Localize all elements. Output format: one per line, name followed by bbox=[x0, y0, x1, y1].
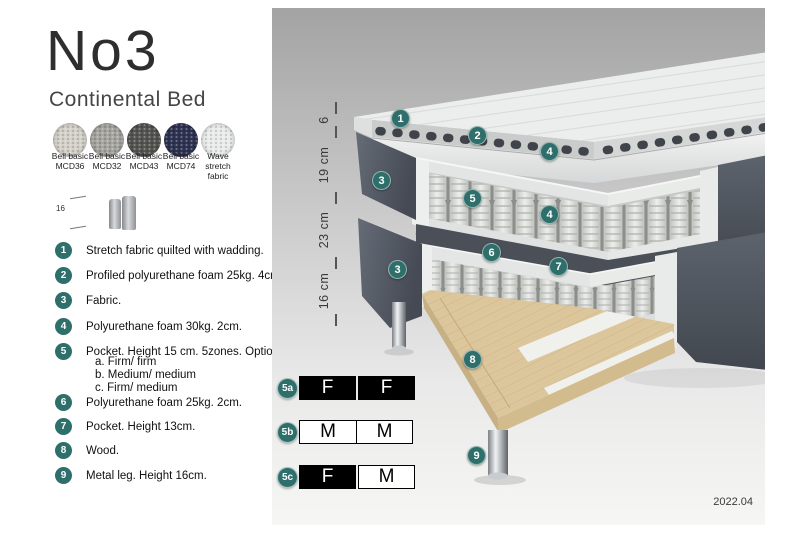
metal-leg-icon bbox=[109, 199, 121, 229]
callout-3: 3 bbox=[372, 171, 391, 190]
legend-option-b: b. Medium/ medium bbox=[95, 369, 196, 382]
legend-item-2: 2 Profiled polyurethane foam 25kg. 4cm. bbox=[55, 267, 283, 284]
legend-item-3: 3 Fabric. bbox=[55, 292, 121, 309]
legend-number-badge: 3 bbox=[55, 292, 72, 309]
legend-item-7: 7 Pocket. Height 13cm. bbox=[55, 418, 195, 435]
legend-number-badge: 5 bbox=[55, 343, 72, 360]
firmness-row-5b: 5b M M bbox=[277, 420, 413, 444]
firmness-row-5a: 5a F F bbox=[277, 376, 415, 400]
bed-cutaway-illustration bbox=[272, 8, 765, 525]
dim-label-base: 23 cm bbox=[317, 200, 331, 260]
firmness-label-badge: 5b bbox=[277, 422, 298, 443]
legend-number-badge: 8 bbox=[55, 442, 72, 459]
dim-tick bbox=[335, 257, 337, 269]
base-fabric-side-right bbox=[677, 232, 765, 370]
leg-dim-tick bbox=[70, 226, 86, 229]
page-title: No3 bbox=[46, 18, 160, 84]
firmness-cell: M bbox=[358, 465, 415, 489]
dim-tick bbox=[335, 126, 337, 138]
legend-item-4: 4 Polyurethane foam 30kg. 2cm. bbox=[55, 318, 242, 335]
dim-tick bbox=[335, 314, 337, 326]
firmness-label-badge: 5c bbox=[277, 467, 298, 488]
legend-number-badge: 9 bbox=[55, 467, 72, 484]
callout-3b: 3 bbox=[388, 260, 407, 279]
callout-4b: 4 bbox=[540, 205, 559, 224]
legend-number-badge: 4 bbox=[55, 318, 72, 335]
callout-9: 9 bbox=[467, 446, 486, 465]
callout-1: 1 bbox=[391, 109, 410, 128]
dim-label-mattress: 19 cm bbox=[317, 135, 331, 195]
legend-option-a: a. Firm/ firm bbox=[95, 356, 156, 369]
callout-5: 5 bbox=[463, 189, 482, 208]
firmness-cell: M bbox=[299, 420, 356, 444]
callout-8: 8 bbox=[463, 350, 482, 369]
page-subtitle: Continental Bed bbox=[49, 88, 206, 112]
legend-number-badge: 2 bbox=[55, 267, 72, 284]
product-sheet: No3 Continental Bed Bell basicMCD36 Bell… bbox=[0, 0, 800, 533]
legend-item-6: 6 Polyurethane foam 25kg. 2cm. bbox=[55, 394, 242, 411]
callout-6: 6 bbox=[482, 243, 501, 262]
metal-leg-icon bbox=[122, 196, 136, 230]
firmness-cell: F bbox=[358, 376, 415, 400]
leg-dim-label: 16 bbox=[56, 204, 65, 213]
version-stamp: 2022.04 bbox=[713, 496, 753, 508]
legend-number-badge: 7 bbox=[55, 418, 72, 435]
callout-7: 7 bbox=[549, 257, 568, 276]
legend-item-5: 5 Pocket. Height 15 cm. 5zones. Option: bbox=[55, 343, 282, 360]
diagram-panel: 6 19 cm 23 cm 16 cm 1 2 4 3 5 4 6 7 3 8 … bbox=[272, 8, 765, 525]
legend-number-badge: 6 bbox=[55, 394, 72, 411]
legend-item-9: 9 Metal leg. Height 16cm. bbox=[55, 467, 207, 484]
legend-number-badge: 1 bbox=[55, 242, 72, 259]
dim-tick bbox=[335, 102, 337, 114]
dim-tick bbox=[335, 192, 337, 204]
firmness-row-5c: 5c F M bbox=[277, 465, 415, 489]
dim-label-leg: 16 cm bbox=[317, 261, 331, 321]
leg-dim-tick bbox=[70, 196, 86, 199]
callout-4: 4 bbox=[540, 142, 559, 161]
firmness-cell: M bbox=[356, 420, 413, 444]
callout-2: 2 bbox=[468, 126, 487, 145]
firmness-cell: F bbox=[299, 376, 356, 400]
legend-item-8: 8 Wood. bbox=[55, 442, 119, 459]
swatch-label: Wavestretch fabric bbox=[196, 152, 240, 181]
firmness-label-badge: 5a bbox=[277, 378, 298, 399]
legend-item-1: 1 Stretch fabric quilted with wadding. bbox=[55, 242, 264, 259]
firmness-cell: F bbox=[299, 465, 356, 489]
